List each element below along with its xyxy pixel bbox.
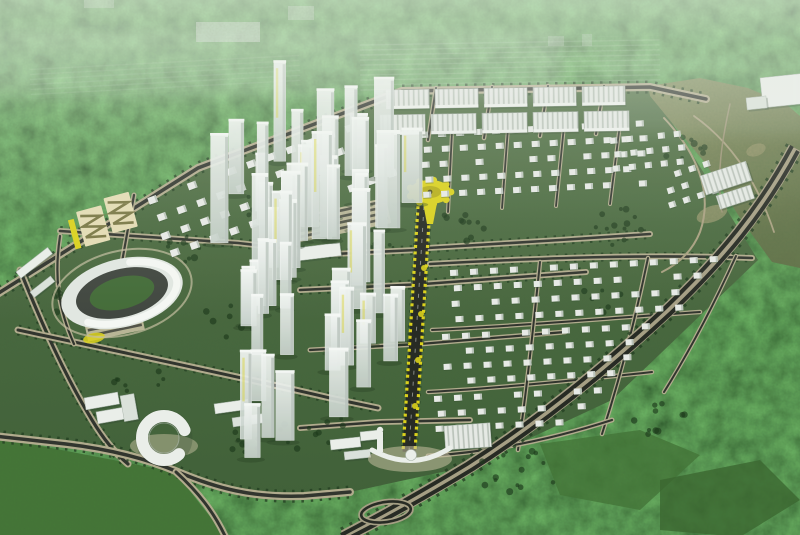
masterplan-rendering [0,0,800,535]
green-cast [0,0,800,535]
masterplan-canvas [0,0,800,535]
atmospheric-haze-layer [0,0,800,535]
